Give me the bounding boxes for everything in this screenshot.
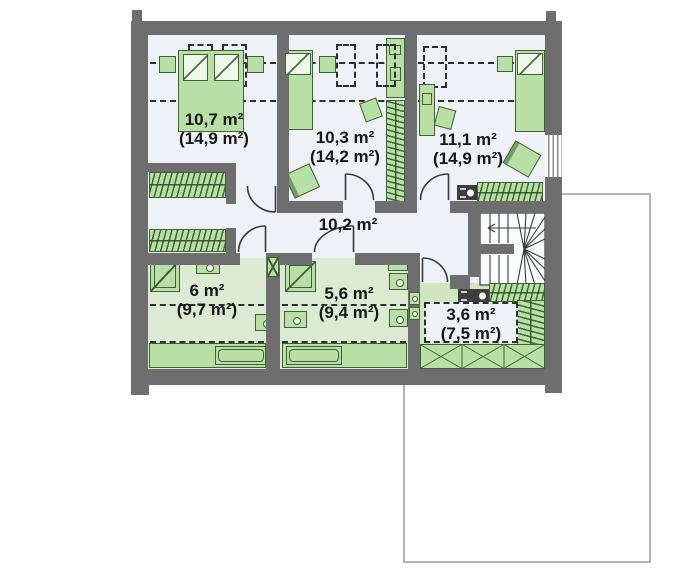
room-gross-area: (14,2 m²) [293, 147, 397, 166]
appliance-door [467, 189, 474, 196]
door-arc-bedroom-3 [419, 172, 450, 201]
window-icon [545, 135, 562, 177]
room-gross-area: (9,4 m²) [297, 303, 401, 322]
wall-right [545, 21, 562, 393]
pillow-icon [183, 54, 208, 81]
room-label-bathroom-1: 6 m² (9,7 m²) [157, 281, 257, 319]
room-label-bathroom-2: 5,6 m² (9,4 m²) [297, 284, 401, 322]
chimney-stub-top-left [132, 10, 142, 22]
skylight-outline [336, 44, 356, 87]
wall-bathroom2-top-left [280, 253, 312, 265]
room-label-bedroom-2: 10,3 m² (14,2 m²) [293, 128, 397, 166]
desk-icon [419, 84, 435, 136]
wall-closet1-top [148, 163, 236, 172]
door-arc-bedroom-2 [344, 172, 375, 201]
room-area: 6 m² [157, 281, 257, 300]
appliance-icon [458, 289, 489, 302]
basin-drain [206, 264, 214, 272]
nightstand-icon [159, 56, 176, 73]
bathtub-icon [215, 346, 267, 365]
storage-label-box: 3,6 m² (7,5 m²) [424, 302, 518, 343]
room-label-storage: 3,6 m² (7,5 m²) [426, 305, 516, 343]
room-area: 10,7 m² [158, 110, 270, 129]
door-arc-bedroom-1 [246, 185, 277, 214]
room-gross-area: (9,7 m²) [157, 300, 257, 319]
pillow-icon [214, 54, 239, 81]
appliance-door [479, 292, 486, 299]
wall-stub-bottom-right [546, 385, 562, 393]
heater-valve [412, 311, 418, 317]
floor-plan-canvas: 10,7 m² (14,9 m²) 10,3 m² (14,2 m²) 11,1… [0, 0, 700, 575]
chimney-stub-top-right [546, 11, 556, 22]
wall-bathroom2-top-right [355, 253, 408, 265]
heater-valve [412, 296, 418, 302]
heater-icon [409, 307, 420, 320]
bathtub-basin [218, 349, 264, 362]
room-gross-area: (7,5 m²) [426, 324, 516, 343]
wardrobe-x-icon [420, 344, 545, 369]
room-area: 11,1 m² [412, 130, 524, 149]
room-gross-area: (14,9 m²) [158, 129, 270, 148]
vent-shaft-icon [267, 257, 279, 277]
nightstand-icon [497, 56, 513, 72]
wall-left [131, 21, 148, 393]
nightstand-icon [247, 56, 264, 73]
pillow-icon [285, 53, 311, 75]
appliance-controls [460, 188, 466, 198]
wall-bedroom2-hall-left [277, 201, 343, 213]
room-label-bedroom-3: 11,1 m² (14,9 m²) [412, 130, 524, 168]
wall-stub-bottom-left [131, 385, 149, 395]
wall-bedroom3-hall [450, 201, 545, 213]
wall-bedroom2-hall-right [375, 201, 406, 213]
wall-closet1-end [226, 163, 236, 204]
wardrobe-icon [477, 182, 543, 203]
room-area: 10,3 m² [293, 128, 397, 147]
door-arc-bathroom-1 [237, 224, 267, 253]
room-area: 3,6 m² [426, 305, 516, 324]
nightstand-icon [319, 56, 336, 73]
wardrobe-icon [517, 300, 545, 345]
room-gross-area: (14,9 m²) [412, 149, 524, 168]
room-area: 5,6 m² [297, 284, 401, 303]
skylight-outline [423, 46, 447, 88]
bathtub-icon [286, 346, 342, 365]
pillow-icon [517, 53, 543, 75]
appliance-controls [461, 291, 467, 301]
wardrobe-icon [149, 229, 226, 252]
wall-bottom [131, 369, 562, 385]
wall-top [131, 21, 562, 35]
heater-icon [409, 292, 420, 305]
skylight-outline [376, 44, 396, 87]
wall-bedroom2-bedroom3 [405, 35, 417, 213]
wardrobe-icon [149, 172, 226, 198]
door-arc-storage [421, 256, 449, 283]
wall-bathroom1-top [148, 253, 240, 265]
room-area: 10,2 m² [308, 215, 388, 234]
bathtub-basin [289, 349, 339, 362]
wall-understair-stub [450, 275, 470, 289]
room-label-bedroom-1: 10,7 m² (14,9 m²) [158, 110, 270, 148]
desk-item [422, 93, 432, 105]
appliance-icon [457, 185, 477, 200]
room-label-hall: 10,2 m² [308, 215, 388, 234]
